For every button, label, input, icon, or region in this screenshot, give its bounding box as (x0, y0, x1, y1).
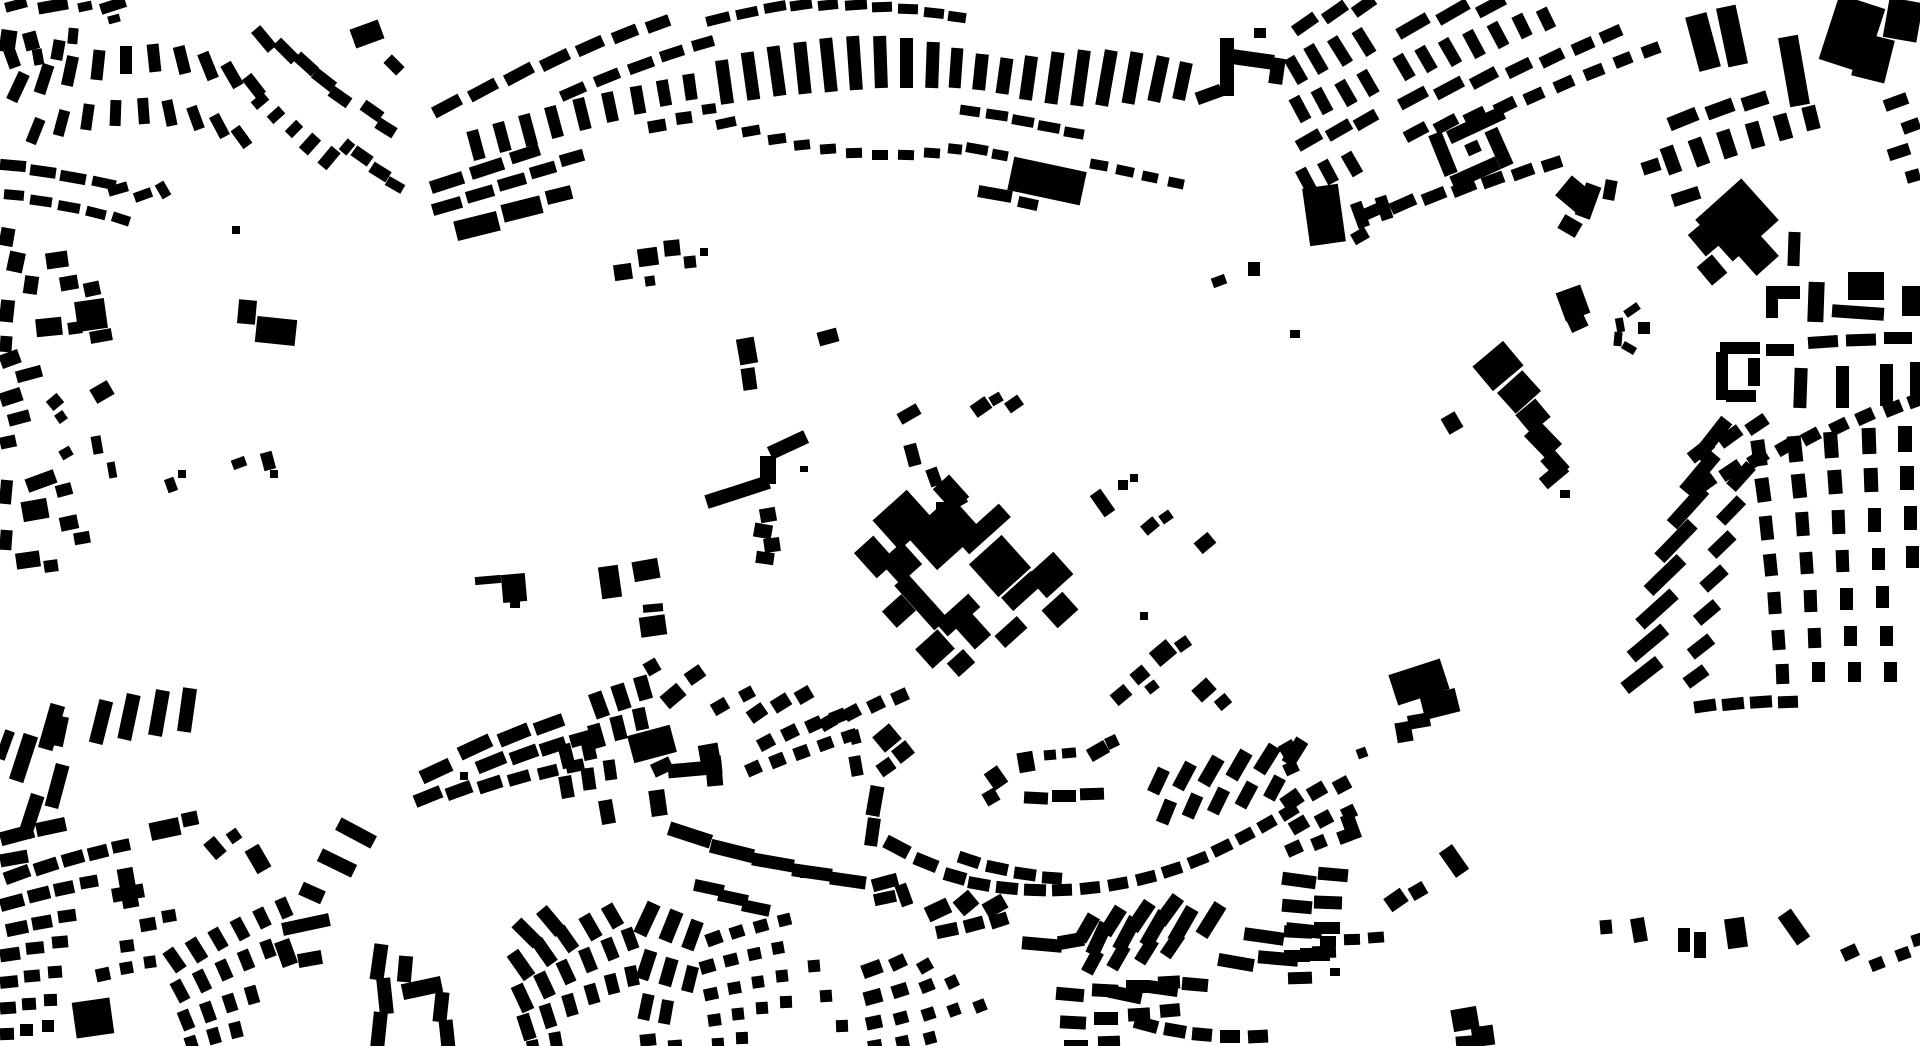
building-footprint (1910, 933, 1920, 948)
building-footprint (33, 857, 60, 877)
building-footprint (603, 759, 618, 780)
building-footprint (1024, 791, 1049, 804)
building-footprint (1511, 163, 1536, 182)
building-footprint (1011, 114, 1034, 128)
building-footprint (90, 49, 105, 80)
building-footprint (925, 466, 942, 487)
building-footprint (800, 870, 808, 878)
building-footprint (895, 1035, 910, 1046)
building-footprint (1147, 55, 1169, 103)
building-footprint (5, 920, 29, 937)
building-footprint (0, 1001, 16, 1014)
building-footprint (285, 120, 303, 138)
building-footprint (633, 675, 653, 702)
building-footprint (1902, 286, 1920, 316)
building-footprint (682, 73, 698, 100)
building-footprint (559, 149, 585, 167)
building-footprint (492, 121, 511, 153)
building-footprint (747, 947, 762, 961)
building-footprint (1787, 232, 1800, 266)
building-footprint (598, 565, 622, 599)
building-footprint (1763, 553, 1778, 576)
building-footprint (1129, 664, 1150, 685)
building-footprint (1325, 118, 1354, 141)
building-footprint (763, 0, 786, 14)
building-footprint (385, 176, 406, 194)
building-footprint (768, 752, 787, 770)
building-footprint (27, 886, 51, 904)
building-footprint (177, 687, 197, 733)
building-footprint (1197, 755, 1224, 788)
building-footprint (1115, 164, 1135, 178)
building-footprint (89, 328, 113, 344)
building-footprint (1487, 21, 1510, 50)
building-footprint (328, 86, 353, 108)
building-footprint (477, 775, 504, 795)
building-footprint (862, 988, 883, 1006)
building-footprint (668, 1040, 683, 1046)
building-footprint (705, 11, 731, 27)
building-footprint (1854, 407, 1876, 426)
building-footprint (1832, 510, 1846, 534)
building-footprint (89, 380, 114, 404)
building-footprint (507, 769, 531, 787)
building-footprint (67, 28, 78, 45)
building-footprint (453, 211, 501, 241)
building-footprint (1840, 588, 1853, 610)
building-footprint (1314, 809, 1335, 829)
building-footprint (898, 4, 918, 15)
building-footprint (949, 48, 964, 89)
building-footprint (1571, 36, 1596, 56)
building-footprint (1052, 884, 1072, 897)
building-footprint (867, 1039, 883, 1046)
building-footprint (1862, 428, 1877, 454)
building-footprint (1697, 254, 1728, 285)
building-footprint (715, 59, 734, 104)
building-footprint (74, 298, 108, 332)
building-footprint (704, 489, 727, 508)
building-footprint (1685, 12, 1721, 72)
building-footprint (529, 161, 557, 180)
building-footprint (1281, 872, 1316, 890)
building-footprint (61, 849, 86, 868)
building-footprint (1144, 679, 1160, 694)
building-footprint (1778, 696, 1798, 709)
building-footprint (170, 978, 191, 1003)
building-footprint (0, 729, 15, 761)
building-footprint (111, 211, 131, 226)
building-footprint (1707, 530, 1736, 559)
building-footprint (237, 299, 257, 324)
building-footprint (561, 993, 579, 1017)
building-footprint (335, 817, 377, 848)
building-footprint (627, 56, 655, 75)
building-footprint (1156, 798, 1177, 825)
building-footprint (1351, 27, 1376, 57)
building-footprint (1716, 495, 1746, 526)
building-footprint (746, 702, 769, 724)
building-footprint (1284, 55, 1308, 85)
building-footprint (794, 139, 811, 151)
building-footprint (1536, 6, 1556, 31)
building-footprint (609, 715, 627, 741)
building-footprint (807, 959, 820, 972)
building-footprint (1872, 548, 1885, 570)
building-footprint (1511, 13, 1532, 40)
building-footprint (777, 913, 793, 928)
building-footprint (1721, 697, 1744, 711)
building-footprint (875, 757, 896, 778)
building-footprint (659, 683, 686, 709)
building-footprint (610, 682, 631, 711)
building-footprint (1225, 749, 1252, 782)
building-footprint (539, 48, 571, 72)
building-footprint (6, 71, 30, 103)
building-footprint (192, 968, 212, 993)
building-footprint (87, 844, 110, 861)
building-footprint (1627, 623, 1670, 662)
building-footprint (728, 924, 745, 940)
building-footprint (1620, 656, 1663, 694)
building-footprint (637, 993, 654, 1021)
building-footprint (981, 787, 1000, 806)
building-footprint (900, 38, 913, 88)
building-footprint (299, 133, 321, 156)
building-footprint (771, 941, 785, 955)
building-footprint (611, 24, 640, 45)
building-footprint (704, 930, 723, 948)
building-footprint (965, 142, 988, 156)
building-footprint (431, 196, 463, 216)
building-footprint (882, 835, 912, 860)
building-footprint (26, 117, 46, 145)
building-footprint (509, 744, 540, 766)
building-footprint (1254, 28, 1266, 38)
building-footprint (1623, 302, 1641, 318)
building-footprint (23, 275, 39, 295)
building-footprint (736, 1032, 748, 1044)
building-footprint (1435, 0, 1470, 26)
building-footprint (209, 113, 230, 139)
building-footprint (1808, 628, 1822, 648)
building-footprint (25, 941, 44, 955)
building-footprint (1748, 358, 1760, 386)
building-footprint (1174, 635, 1192, 653)
building-footprint (957, 851, 982, 869)
building-footprint (1243, 927, 1284, 945)
building-footprint (164, 477, 178, 494)
building-footprint (1640, 158, 1661, 176)
building-footprint (601, 902, 624, 929)
building-footprint (1613, 332, 1622, 347)
building-footprint (1832, 304, 1885, 321)
building-footprint (829, 872, 866, 890)
building-footprint (1836, 366, 1849, 408)
building-footprint (1900, 117, 1920, 134)
building-footprint (866, 785, 885, 817)
building-footprint (1310, 834, 1328, 851)
building-footprint (25, 469, 58, 492)
building-footprint (1013, 867, 1036, 882)
building-footprint (1395, 12, 1430, 39)
building-footprint (963, 916, 986, 934)
building-footprint (1217, 953, 1255, 972)
building-footprint (780, 996, 792, 1008)
building-footprint (715, 116, 737, 130)
building-footprint (1118, 480, 1128, 490)
building-footprint (24, 969, 41, 982)
building-footprint (819, 37, 838, 92)
building-footprint (895, 883, 914, 908)
building-footprint (848, 729, 861, 745)
building-footprint (50, 39, 65, 61)
building-footprint (526, 1039, 542, 1046)
building-footprint (1220, 38, 1234, 96)
building-footprint (1163, 1022, 1187, 1039)
building-footprint (936, 502, 946, 512)
building-footprint (1884, 662, 1897, 682)
building-footprint (232, 226, 240, 234)
building-footprint (1344, 934, 1360, 946)
building-footprint (756, 1002, 769, 1015)
building-footprint (119, 961, 134, 975)
building-footprint (44, 994, 57, 1006)
building-footprint (948, 143, 963, 154)
building-footprint (1522, 86, 1545, 105)
building-footprint (1062, 747, 1077, 758)
building-footprint (79, 875, 99, 890)
building-footprint (959, 105, 980, 118)
building-footprint (943, 867, 968, 886)
building-footprint (780, 723, 800, 742)
building-footprint (898, 150, 914, 161)
building-footprint (1599, 24, 1624, 44)
building-footprint (1130, 474, 1138, 482)
building-footprint (741, 899, 771, 917)
building-footprint (0, 159, 26, 172)
building-footprint (846, 36, 863, 91)
building-footprint (601, 91, 619, 123)
building-footprint (1133, 1015, 1160, 1034)
building-footprint (85, 206, 107, 221)
building-footprint (59, 275, 79, 292)
building-footprint (1615, 317, 1625, 332)
building-footprint (206, 1027, 222, 1046)
building-footprint (186, 105, 205, 131)
building-footprint (35, 317, 63, 338)
building-footprint (533, 970, 556, 999)
building-footprint (545, 185, 574, 205)
building-footprint (383, 54, 404, 75)
building-footprint (1044, 51, 1064, 104)
building-footprint (860, 959, 884, 979)
building-footprint (753, 918, 770, 933)
building-footprint (1196, 901, 1227, 939)
building-footprint (1880, 626, 1893, 646)
building-footprint (1793, 368, 1807, 408)
building-footprint (741, 51, 761, 100)
building-footprint (723, 952, 739, 967)
building-footprint (0, 893, 25, 912)
building-footprint (89, 699, 113, 745)
building-footprint (1161, 861, 1184, 879)
building-footprint (1403, 121, 1430, 143)
building-footprint (1778, 908, 1811, 945)
building-footprint (865, 1014, 883, 1030)
building-footprint (1766, 344, 1794, 356)
building-footprint (636, 949, 658, 982)
building-footprint (475, 575, 502, 585)
building-footprint (1172, 761, 1197, 792)
building-footprint (1455, 1035, 1474, 1046)
building-footprint (712, 1038, 725, 1046)
building-footprint (741, 125, 760, 138)
building-footprint (1110, 684, 1133, 706)
building-footprint (947, 11, 966, 23)
building-footprint (1469, 66, 1499, 90)
building-footprint (1317, 159, 1339, 186)
building-footprint (0, 975, 19, 989)
building-footprint (203, 836, 227, 860)
building-footprint (120, 46, 132, 74)
building-footprint (1745, 121, 1766, 150)
building-footprint (207, 926, 228, 951)
building-footprint (1375, 195, 1394, 222)
building-footprint (1042, 871, 1063, 884)
building-footprint (148, 689, 170, 737)
building-footprint (727, 981, 742, 995)
building-footprint (139, 917, 157, 933)
building-footprint (1471, 1025, 1496, 1046)
building-footprint (77, 1, 93, 13)
building-footprint (1694, 932, 1706, 958)
building-footprint (548, 1031, 563, 1046)
building-footprint (770, 692, 793, 713)
building-footprint (1231, 49, 1275, 70)
building-footprint (558, 775, 575, 799)
building-footprint (155, 181, 172, 200)
building-footprint (1795, 512, 1810, 537)
building-footprint (848, 755, 863, 777)
building-footprint (31, 914, 53, 930)
building-footprint (465, 184, 495, 203)
building-footprint (845, 0, 868, 11)
building-footprint (1122, 51, 1144, 104)
building-footprint (675, 111, 693, 125)
building-footprint (1766, 296, 1778, 318)
building-footprint (996, 57, 1014, 94)
building-footprint (0, 299, 15, 322)
building-footprint (374, 118, 397, 139)
building-footprint (107, 461, 118, 478)
building-footprint (1884, 332, 1912, 344)
building-footprint (510, 600, 520, 608)
building-footprint (439, 1019, 456, 1046)
building-footprint (231, 125, 253, 149)
building-footprint (178, 470, 186, 478)
building-footprint (0, 336, 13, 353)
building-footprint (1773, 113, 1794, 142)
building-footprint (1906, 546, 1919, 568)
building-footprint (317, 848, 357, 877)
building-footprint (792, 744, 811, 761)
building-footprint (0, 387, 24, 407)
building-footprint (1191, 1027, 1212, 1042)
building-footprint (918, 978, 935, 994)
building-footprint (0, 434, 17, 449)
building-footprint (972, 998, 988, 1014)
building-footprint (237, 948, 256, 971)
building-footprint (1787, 435, 1804, 462)
building-footprint (1147, 980, 1179, 997)
building-footprint (1095, 49, 1118, 106)
building-footprint (45, 763, 70, 809)
building-footprint (1080, 788, 1104, 801)
building-footprint (1079, 881, 1100, 895)
building-footprint (80, 103, 95, 130)
building-footprint (705, 755, 724, 786)
building-footprint (600, 937, 619, 962)
building-footprint (83, 280, 102, 297)
building-footprint (173, 45, 191, 75)
building-footprint (663, 239, 681, 257)
building-footprint (1167, 176, 1185, 189)
building-footprint (613, 263, 633, 281)
building-footprint (148, 817, 181, 841)
building-footprint (1557, 214, 1582, 238)
building-footprint (111, 838, 131, 853)
building-footprint (6, 251, 26, 274)
building-footprint (637, 247, 659, 268)
building-footprint (820, 990, 833, 1003)
building-footprint (1791, 473, 1807, 498)
building-footprint (197, 51, 219, 81)
building-footprint (1846, 333, 1876, 346)
building-footprint (1582, 63, 1605, 82)
building-footprint (161, 99, 177, 127)
building-footprint (22, 998, 37, 1011)
building-footprint (1750, 439, 1767, 467)
building-footprint (723, 475, 771, 503)
building-footprint (1726, 390, 1756, 402)
building-footprint (991, 149, 1008, 162)
building-footprint (1804, 590, 1818, 612)
building-footprint (1312, 946, 1336, 959)
building-footprint (509, 144, 541, 165)
building-footprint (1332, 775, 1353, 795)
building-footprint (1017, 196, 1039, 211)
building-footprint (0, 530, 13, 551)
building-footprint (763, 537, 781, 553)
building-footprint (691, 35, 715, 52)
building-footprint (1327, 35, 1353, 67)
building-footprint (1438, 37, 1462, 67)
building-footprint (1356, 69, 1379, 98)
building-footprint (1098, 1036, 1120, 1046)
building-footprint (890, 982, 909, 999)
building-footprint (656, 79, 672, 107)
building-footprint (1220, 1030, 1240, 1043)
building-footprint (54, 410, 68, 424)
building-footprint (639, 1033, 656, 1046)
building-footprint (1840, 943, 1860, 962)
building-footprint (1214, 693, 1232, 711)
building-footprint (230, 916, 251, 941)
building-footprint (7, 409, 31, 426)
building-footprint (681, 965, 699, 993)
building-footprint (1284, 950, 1310, 962)
